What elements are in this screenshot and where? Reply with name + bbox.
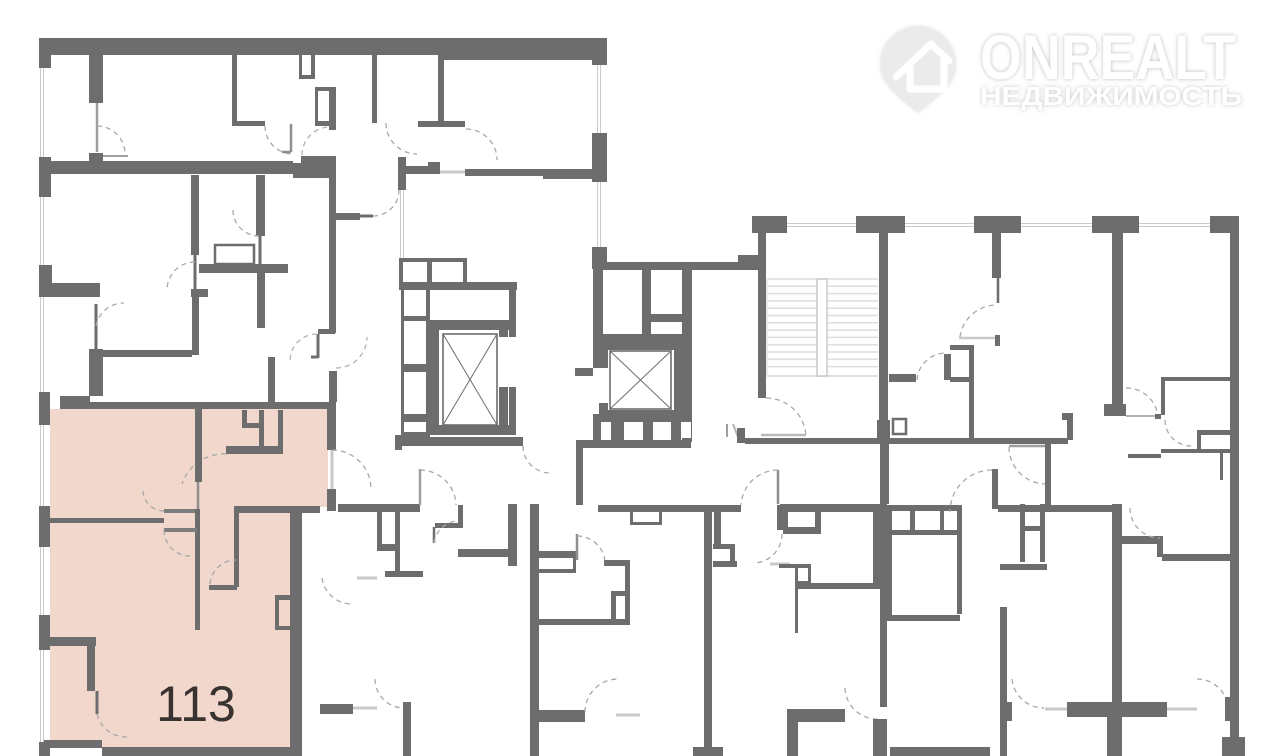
svg-text:НЕДВИЖИМОСТЬ: НЕДВИЖИМОСТЬ <box>980 81 1242 111</box>
svg-text:113: 113 <box>156 676 236 732</box>
